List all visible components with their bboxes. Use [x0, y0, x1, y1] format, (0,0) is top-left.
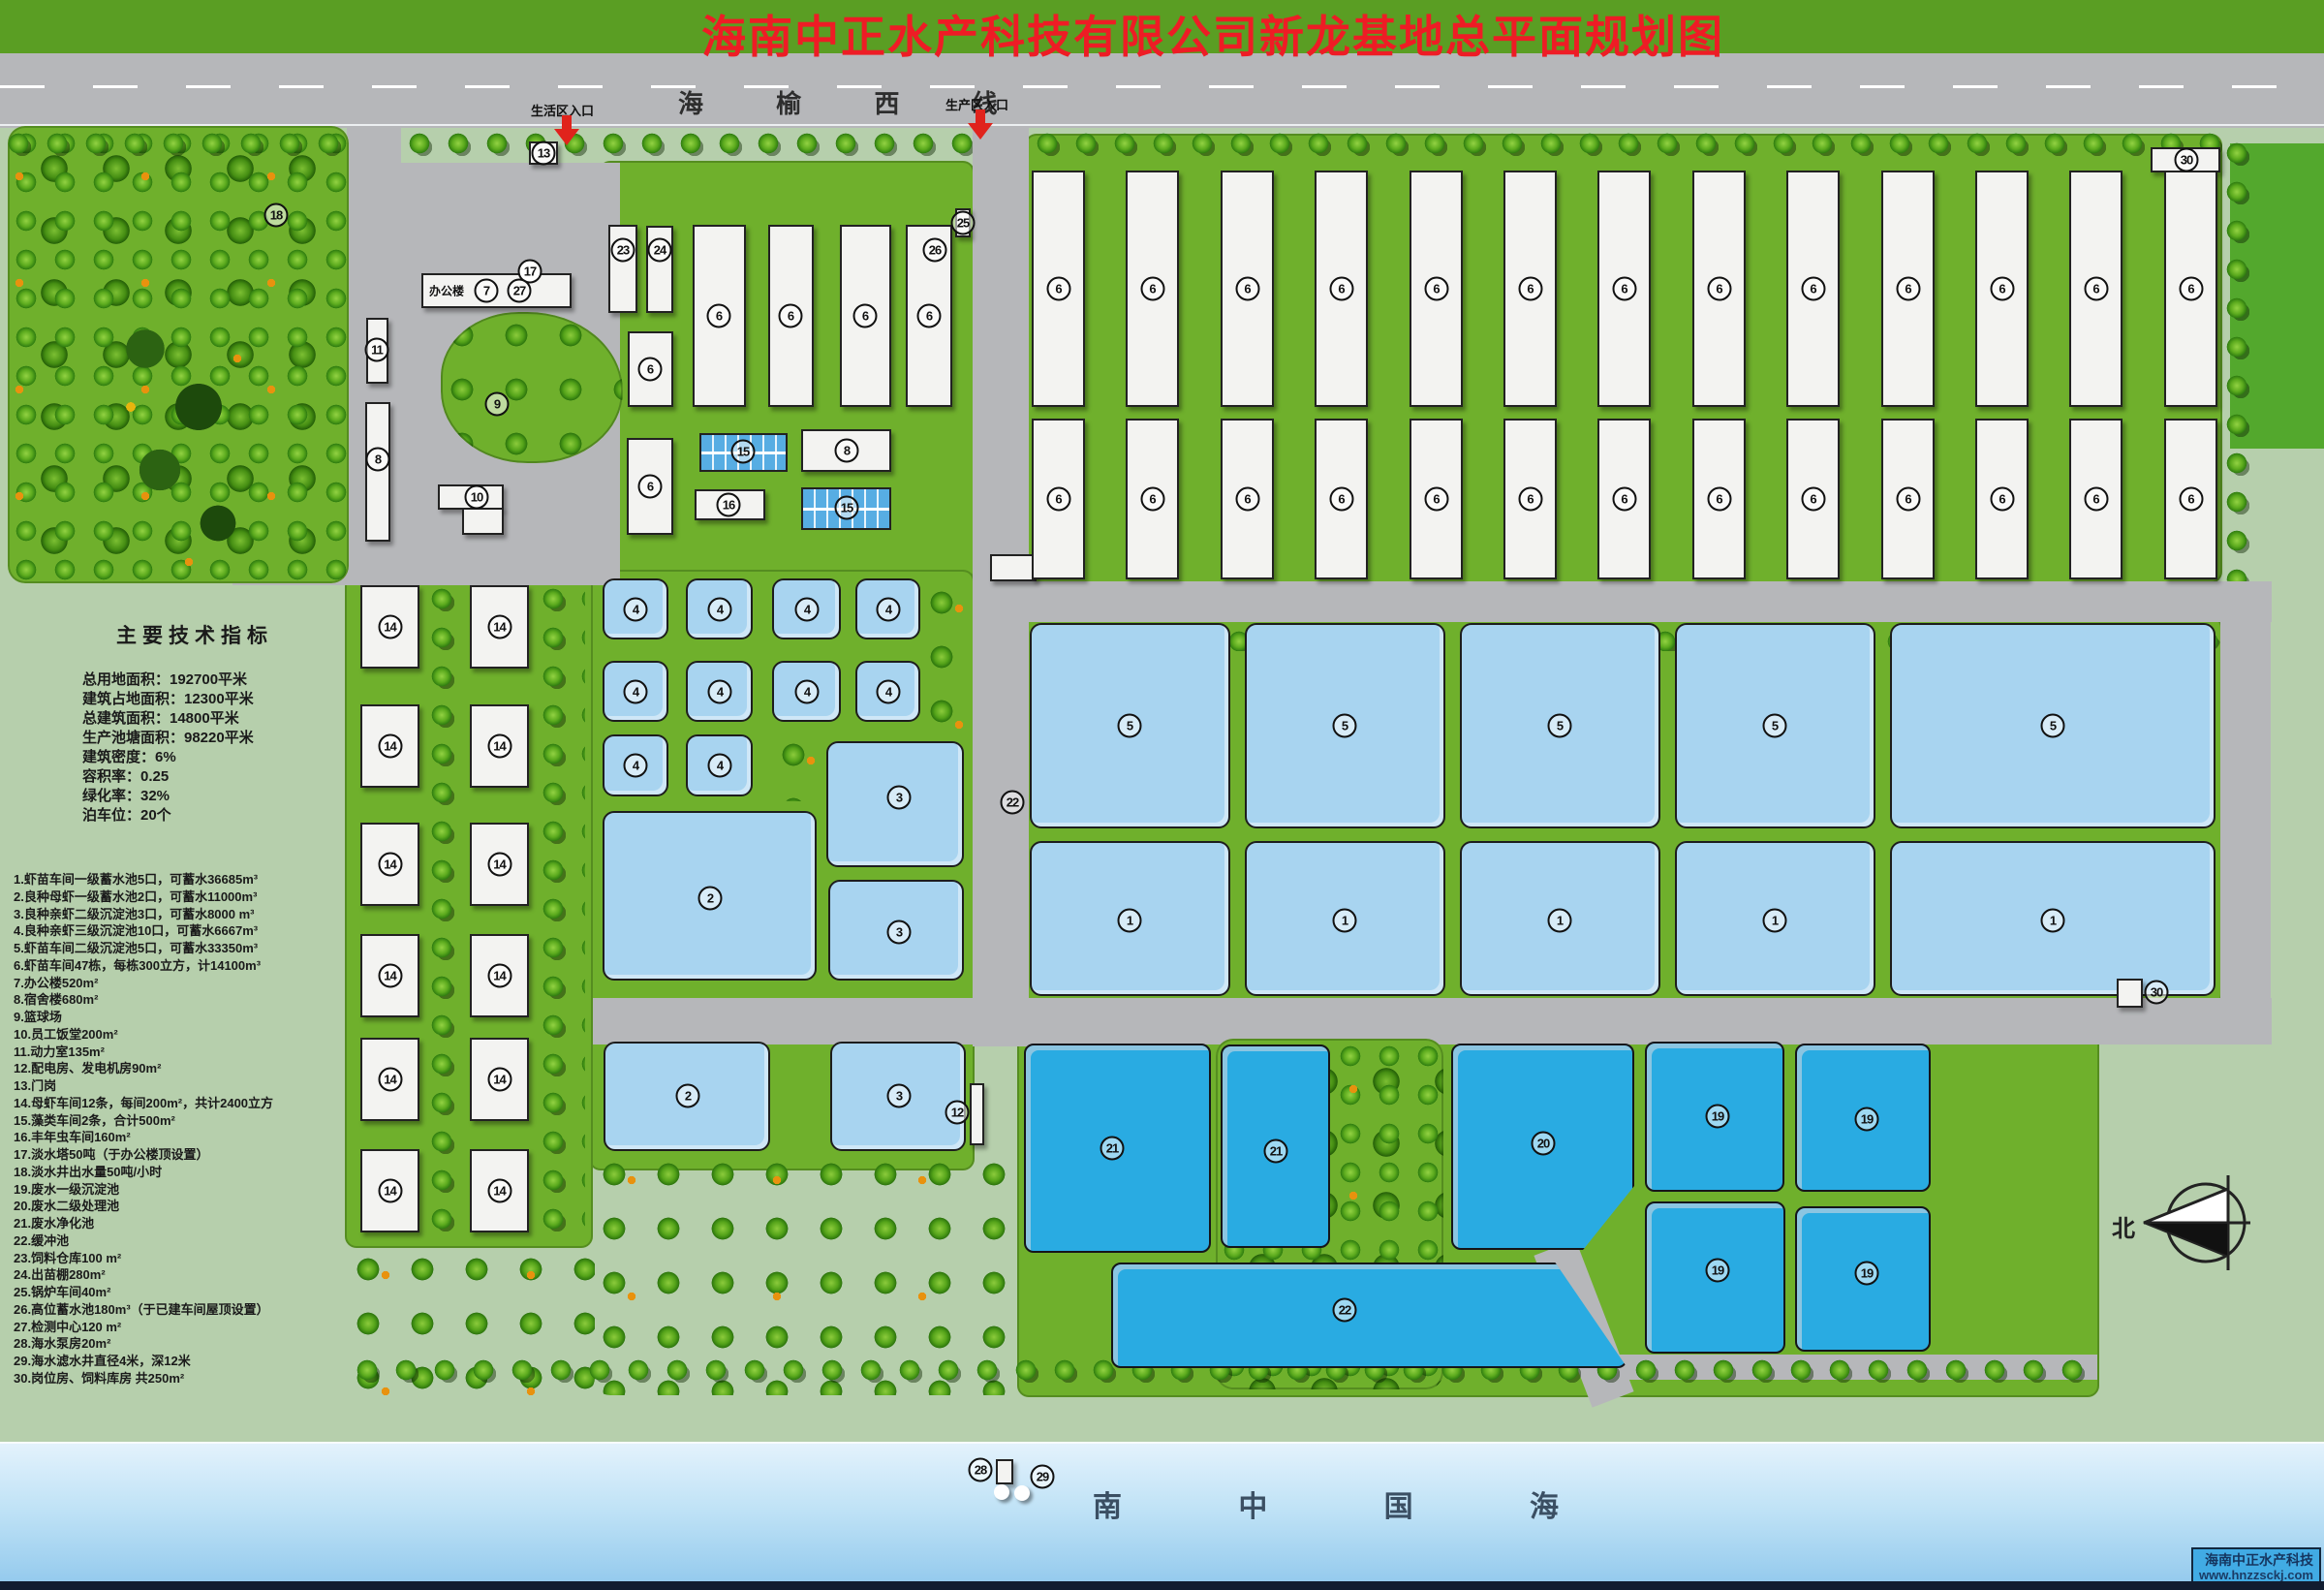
legend-item: 13.门岗	[14, 1077, 273, 1095]
map-label-14: 14	[378, 1068, 402, 1092]
map-label-4: 4	[624, 598, 648, 622]
legend-item: 24.出苗棚280m²	[14, 1266, 273, 1284]
legend-item: 17.淡水塔50吨（于办公楼顶设置）	[14, 1146, 273, 1164]
tree-strip	[1029, 126, 2223, 167]
map-label-15: 15	[731, 440, 756, 464]
legend-item: 6.虾苗车间47栋，每栋300立方，计14100m³	[14, 957, 273, 975]
map-label-7: 7	[475, 279, 499, 303]
map-label-6: 6	[2179, 277, 2203, 301]
map-label-4: 4	[877, 680, 901, 704]
map-label-14: 14	[378, 615, 402, 639]
legend-item: 4.良种亲虾三级沉淀池10口，可蓄水6667m³	[14, 922, 273, 940]
map-label-4: 4	[795, 598, 820, 622]
road	[2220, 581, 2271, 1044]
map-label-14: 14	[378, 964, 402, 988]
legend-item: 16.丰年虫车间160m²	[14, 1129, 273, 1146]
legend-item: 15.藻类车间2条，合计500m²	[14, 1112, 273, 1130]
tree-strip	[2218, 136, 2259, 581]
map-label-5: 5	[1548, 714, 1572, 738]
legend-item: 2.良种母虾一级蓄水池2口，可蓄水11000m³	[14, 889, 273, 906]
map-label-5: 5	[1763, 714, 1787, 738]
sea-well-dot	[994, 1484, 1009, 1500]
map-label-19: 19	[1706, 1259, 1730, 1283]
map-label-6: 6	[2179, 487, 2203, 512]
map-label-20: 20	[1532, 1132, 1556, 1156]
legend-item: 3.良种亲虾二级沉淀池3口，可蓄水8000 m³	[14, 906, 273, 923]
map-label-6: 6	[1235, 487, 1259, 512]
legend-item: 27.检测中心120 m²	[14, 1319, 273, 1336]
map-label-6: 6	[638, 358, 663, 382]
map-label-6: 6	[1707, 277, 1731, 301]
entrance-production-arrow-icon	[968, 123, 993, 140]
map-label-14: 14	[487, 1179, 511, 1203]
map-label-6: 6	[1518, 487, 1542, 512]
tech-indicators-panel: 主要技术指标 总用地面积：192700平米建筑占地面积：12300平米总建筑面积…	[82, 620, 273, 826]
tech-indicator-line: 泊车位：20个	[82, 806, 273, 826]
map-label-21: 21	[1100, 1137, 1125, 1161]
map-label-2: 2	[676, 1084, 700, 1108]
legend-item: 5.虾苗车间二级沉淀池5口，可蓄水33350m³	[14, 940, 273, 957]
map-label-4: 4	[708, 754, 732, 778]
building	[365, 402, 390, 542]
entrance-living-arrow-icon	[554, 129, 579, 145]
map-label-2: 2	[698, 887, 723, 911]
map-label-6: 6	[1140, 487, 1164, 512]
legend-item: 28.海水泵房20m²	[14, 1335, 273, 1353]
legend-item: 29.海水滤水井直径4米，深12米	[14, 1353, 273, 1370]
map-label-14: 14	[378, 853, 402, 877]
tech-indicator-line: 容积率：0.25	[82, 767, 273, 787]
tree-strip	[401, 126, 973, 167]
map-label-5: 5	[1118, 714, 1142, 738]
legend-item: 22.缓冲池	[14, 1232, 273, 1250]
map-label-14: 14	[487, 964, 511, 988]
map-label-6: 6	[1896, 277, 1920, 301]
map-label-6: 6	[1518, 277, 1542, 301]
tree-strip	[423, 581, 468, 1245]
map-label-25: 25	[951, 211, 976, 235]
map-label-1: 1	[2041, 909, 2065, 933]
legend-item: 1.虾苗车间一级蓄水池5口，可蓄水36685m³	[14, 871, 273, 889]
legend-item: 26.高位蓄水池180m³（于已建车间屋顶设置）	[14, 1301, 273, 1319]
compass-north-label: 北	[2112, 1209, 2135, 1243]
map-label-6: 6	[1329, 487, 1353, 512]
map-label-4: 4	[708, 680, 732, 704]
tech-indicators-lines: 总用地面积：192700平米建筑占地面积：12300平米总建筑面积：14800平…	[82, 670, 273, 826]
map-label-22: 22	[1001, 791, 1025, 815]
tech-indicator-line: 建筑占地面积：12300平米	[82, 690, 273, 709]
map-label-10: 10	[465, 485, 489, 510]
header-band: 海南中正水产科技有限公司新龙基地总平面规划图	[0, 0, 2324, 53]
map-label-5: 5	[2041, 714, 2065, 738]
road	[973, 126, 1029, 1046]
map-label-4: 4	[708, 598, 732, 622]
map-label-14: 14	[378, 1179, 402, 1203]
legend-item: 7.办公楼520m²	[14, 975, 273, 992]
map-label-8: 8	[366, 448, 390, 472]
map-label-6: 6	[707, 304, 731, 328]
map-label-21: 21	[1264, 1139, 1288, 1164]
map-label-6: 6	[1046, 487, 1070, 512]
map-label-3: 3	[887, 786, 912, 810]
map-label-14: 14	[487, 1068, 511, 1092]
map-label-1: 1	[1763, 909, 1787, 933]
tech-indicator-line: 总用地面积：192700平米	[82, 670, 273, 690]
map-label-19: 19	[1706, 1105, 1730, 1129]
map-label-1: 1	[1548, 909, 1572, 933]
map-label-4: 4	[624, 680, 648, 704]
legend-item: 10.员工饭堂200m²	[14, 1026, 273, 1044]
map-label-6: 6	[1235, 277, 1259, 301]
legend-item: 30.岗位房、饲料库房 共250m²	[14, 1370, 273, 1387]
legend-item: 21.废水净化池	[14, 1215, 273, 1232]
legend-list: 1.虾苗车间一级蓄水池5口，可蓄水36685m³2.良种母虾一级蓄水池2口，可蓄…	[14, 871, 273, 1387]
map-label-18: 18	[264, 203, 289, 228]
tree-strip	[772, 732, 826, 801]
sea-well-dot	[1014, 1485, 1030, 1501]
legend-item: 23.饲料仓库100 m²	[14, 1250, 273, 1267]
page-title: 海南中正水产科技有限公司新龙基地总平面规划图	[0, 2, 2324, 66]
map-label-13: 13	[532, 141, 556, 166]
map-label-6: 6	[1612, 277, 1636, 301]
map-label-6: 6	[2084, 487, 2108, 512]
legend-item: 25.锅炉车间40m²	[14, 1284, 273, 1301]
map-label-14: 14	[487, 615, 511, 639]
legend-item: 9.篮球场	[14, 1009, 273, 1026]
map-label-6: 6	[1707, 487, 1731, 512]
map-label-6: 6	[2084, 277, 2108, 301]
map-label-6: 6	[1990, 277, 2014, 301]
road	[1027, 581, 2272, 622]
map-label-29: 29	[1031, 1465, 1055, 1489]
map-label-15: 15	[835, 496, 859, 520]
map-label-9: 9	[485, 392, 510, 417]
map-label-24: 24	[648, 238, 672, 263]
map-label-4: 4	[624, 754, 648, 778]
map-label-6: 6	[853, 304, 878, 328]
bottom-border	[0, 1581, 2324, 1590]
map-label-11: 11	[365, 338, 389, 362]
map-label-6: 6	[1801, 487, 1825, 512]
map-label-1: 1	[1333, 909, 1357, 933]
legend-item: 12.配电房、发电机房90m²	[14, 1060, 273, 1077]
tree-clump	[92, 291, 286, 581]
building	[996, 1459, 1013, 1484]
map-label-5: 5	[1333, 714, 1357, 738]
map-label-23: 23	[611, 238, 635, 263]
map-features: 办公楼6666666666666666666666666614141414141…	[0, 0, 2324, 1590]
watermark-url: www.hnzzsckj.com	[2193, 1568, 2313, 1582]
map-label-6: 6	[638, 475, 663, 499]
map-label-14: 14	[487, 853, 511, 877]
entrance-production-arrow-stem	[976, 109, 985, 124]
pond-deep	[1111, 1263, 1627, 1368]
map-label-27: 27	[508, 279, 532, 303]
map-label-3: 3	[887, 920, 912, 945]
map-label-6: 6	[1329, 277, 1353, 301]
map-label-22: 22	[1333, 1298, 1357, 1323]
map-label-6: 6	[1801, 277, 1825, 301]
entrance-living-arrow-stem	[562, 115, 572, 130]
map-label-1: 1	[1118, 909, 1142, 933]
legend-item: 19.废水一级沉淀池	[14, 1181, 273, 1199]
map-label-14: 14	[487, 734, 511, 759]
map-label-4: 4	[877, 598, 901, 622]
map-label-19: 19	[1855, 1262, 1879, 1286]
map-label-4: 4	[795, 680, 820, 704]
map-label-3: 3	[887, 1084, 912, 1108]
building	[970, 1083, 984, 1145]
map-label-14: 14	[378, 734, 402, 759]
map-label-6: 6	[779, 304, 803, 328]
tech-indicators-title: 主要技术指标	[116, 620, 273, 649]
map-label-6: 6	[1140, 277, 1164, 301]
office-building-label: 办公楼	[429, 283, 464, 299]
map-label-6: 6	[1424, 277, 1448, 301]
road	[593, 998, 2272, 1044]
building	[990, 554, 1037, 581]
tech-indicator-line: 总建筑面积：14800平米	[82, 709, 273, 729]
map-label-6: 6	[1612, 487, 1636, 512]
map-label-16: 16	[717, 493, 741, 517]
watermark-company: 海南中正水产科技	[2193, 1552, 2313, 1568]
tree-strip	[920, 579, 975, 739]
tree-strip	[0, 126, 347, 167]
legend-item: 18.淡水井出水量50吨/小时	[14, 1164, 273, 1181]
legend-item: 14.母虾车间12条，每间200m²，共计2400立方	[14, 1095, 273, 1112]
tech-indicator-line: 生产池塘面积：98220平米	[82, 729, 273, 748]
legend-item: 11.动力室135m²	[14, 1044, 273, 1061]
legend-item: 8.宿舍楼680m²	[14, 991, 273, 1009]
map-label-8: 8	[835, 439, 859, 463]
map-label-30: 30	[2145, 981, 2169, 1005]
map-label-28: 28	[969, 1458, 993, 1482]
building	[2117, 979, 2143, 1008]
map-label-6: 6	[1896, 487, 1920, 512]
map-label-12: 12	[945, 1101, 970, 1125]
tech-indicator-line: 建筑密度：6%	[82, 748, 273, 767]
map-label-6: 6	[1424, 487, 1448, 512]
legend-panel: 1.虾苗车间一级蓄水池5口，可蓄水36685m³2.良种母虾一级蓄水池2口，可蓄…	[14, 871, 273, 1387]
building	[462, 508, 504, 535]
tech-indicator-line: 绿化率：32%	[82, 787, 273, 806]
map-label-6: 6	[1046, 277, 1070, 301]
map-label-30: 30	[2175, 148, 2199, 172]
legend-item: 20.废水二级处理池	[14, 1198, 273, 1215]
map-label-19: 19	[1855, 1107, 1879, 1132]
tree-strip	[535, 581, 585, 1245]
map-label-6: 6	[1990, 487, 2014, 512]
site-plan-canvas: 海南中正水产科技有限公司新龙基地总平面规划图 海 榆 西 线 生活区入口 生产区…	[0, 0, 2324, 1590]
map-label-26: 26	[923, 238, 947, 263]
map-label-6: 6	[917, 304, 942, 328]
